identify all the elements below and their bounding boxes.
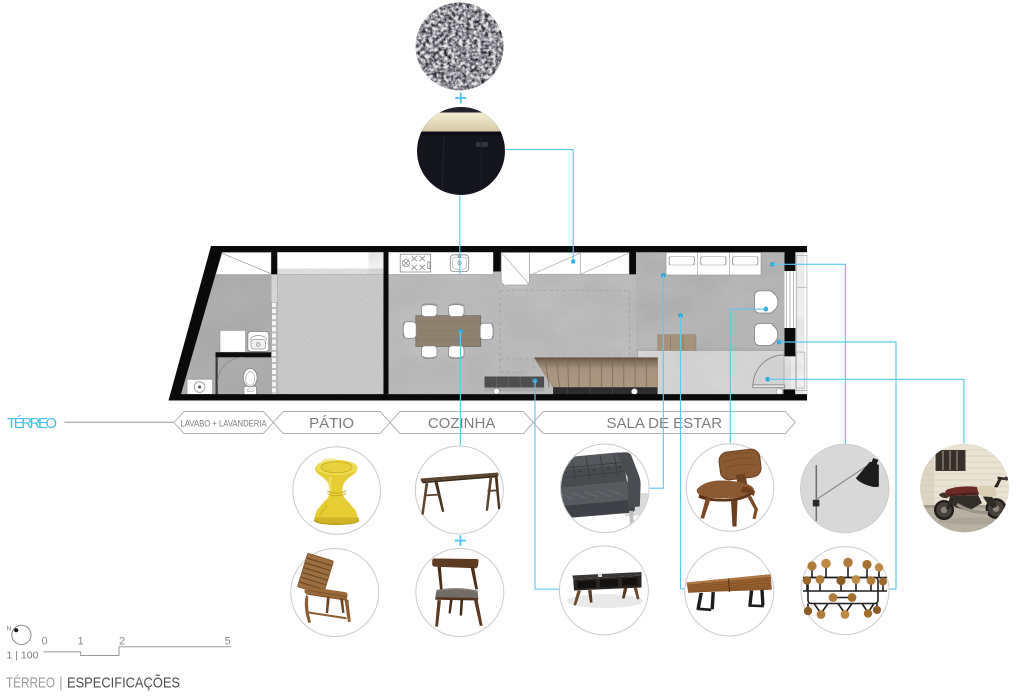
svg-text:0: 0 xyxy=(41,636,47,648)
svg-text:2: 2 xyxy=(119,636,125,648)
svg-text:PÁTIO: PÁTIO xyxy=(309,415,354,432)
svg-text:|: | xyxy=(59,676,63,692)
svg-text:SALA DE ESTAR: SALA DE ESTAR xyxy=(606,415,722,432)
svg-text:1 | 100: 1 | 100 xyxy=(7,650,39,662)
svg-text:N: N xyxy=(7,626,12,633)
svg-text:LAVABO + LAVANDERIA: LAVABO + LAVANDERIA xyxy=(181,418,268,428)
svg-text:TÉRREO: TÉRREO xyxy=(6,675,55,692)
svg-text:TÉRREO: TÉRREO xyxy=(7,415,57,432)
svg-text:ESPECIFICAÇÕES: ESPECIFICAÇÕES xyxy=(67,675,180,692)
svg-text:5: 5 xyxy=(224,636,230,648)
svg-text:COZINHA: COZINHA xyxy=(428,415,496,432)
svg-text:1: 1 xyxy=(77,636,83,648)
